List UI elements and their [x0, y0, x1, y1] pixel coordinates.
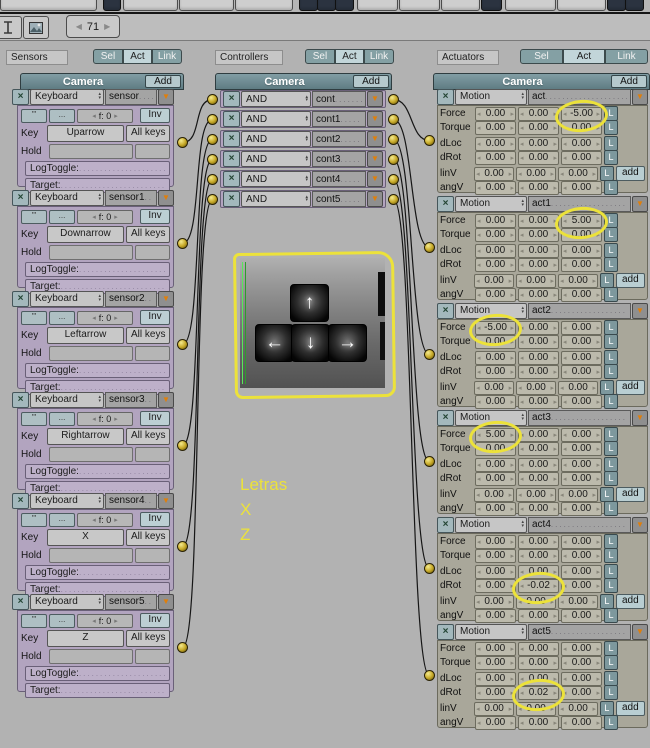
controller-output-socket[interactable]: [388, 94, 399, 105]
local-toggle-button[interactable]: L: [604, 394, 618, 409]
value-field[interactable]: 0.00: [475, 672, 516, 686]
value-field[interactable]: 0.00: [475, 686, 516, 700]
pulse-positive-icon-button[interactable]: ''': [21, 109, 47, 123]
value-field[interactable]: 0.00: [518, 244, 559, 258]
value-field[interactable]: 0.00: [558, 595, 598, 609]
add-toggle-button[interactable]: add: [616, 273, 645, 288]
value-field[interactable]: 0.00: [558, 702, 598, 716]
value-field[interactable]: 0.00: [518, 335, 559, 349]
sensor-type-dropdown[interactable]: Keyboard: [30, 89, 104, 105]
value-field[interactable]: 0.00: [475, 502, 516, 516]
value-field[interactable]: 0.00: [561, 686, 602, 700]
actuator-collapse-button[interactable]: [632, 517, 648, 533]
value-field[interactable]: 0.00: [518, 228, 559, 242]
actuator-input-socket[interactable]: [424, 456, 435, 467]
controller-type-dropdown[interactable]: AND: [241, 151, 311, 167]
hold-field[interactable]: [49, 346, 133, 361]
local-toggle-button[interactable]: L: [604, 715, 618, 730]
value-field[interactable]: 0.00: [518, 321, 559, 335]
sensors-act-button[interactable]: Act: [123, 49, 152, 64]
value-field[interactable]: 0.00: [561, 395, 602, 409]
controllers-sel-button[interactable]: Sel: [305, 49, 335, 64]
actuator-close-button[interactable]: [437, 624, 454, 640]
value-field[interactable]: 0.00: [561, 565, 602, 579]
sensor-close-button[interactable]: [12, 190, 29, 206]
toolbar-button[interactable]: [357, 0, 398, 11]
sensor-close-button[interactable]: [12, 493, 29, 509]
controller-collapse-button[interactable]: [367, 131, 383, 147]
local-toggle-button[interactable]: L: [600, 380, 614, 395]
frequency-field[interactable]: f: 0: [77, 412, 133, 426]
value-field[interactable]: 0.00: [518, 428, 559, 442]
value-field[interactable]: 0.00: [474, 595, 514, 609]
controllers-link-button[interactable]: Link: [364, 49, 394, 64]
local-toggle-button[interactable]: L: [604, 655, 618, 670]
controller-input-socket[interactable]: [207, 94, 218, 105]
sensor-name-field[interactable]: sensor: [105, 89, 157, 105]
actuator-input-socket[interactable]: [424, 242, 435, 253]
pulse-negative-icon-button[interactable]: ...: [49, 210, 75, 224]
sensor-output-socket[interactable]: [177, 339, 188, 350]
controller-collapse-button[interactable]: [367, 111, 383, 127]
image-icon-button[interactable]: [23, 16, 49, 39]
local-toggle-button[interactable]: L: [600, 273, 614, 288]
local-toggle-button[interactable]: L: [604, 243, 618, 258]
value-field[interactable]: 0.00: [475, 716, 516, 730]
frequency-field[interactable]: f: 0: [77, 210, 133, 224]
actuators-sel-button[interactable]: Sel: [520, 49, 563, 64]
value-field[interactable]: 0.00: [558, 274, 598, 288]
toolbar-button[interactable]: [0, 0, 97, 11]
actuator-close-button[interactable]: [437, 89, 454, 105]
local-toggle-button[interactable]: L: [604, 534, 618, 549]
controller-close-button[interactable]: [223, 111, 240, 127]
pulse-negative-icon-button[interactable]: ...: [49, 109, 75, 123]
value-field[interactable]: 0.00: [561, 288, 602, 302]
toolbar-button[interactable]: [557, 0, 606, 11]
value-field[interactable]: 0.00: [561, 244, 602, 258]
toolbar-button[interactable]: [299, 0, 318, 11]
value-field[interactable]: 0.00: [474, 381, 514, 395]
frame-number-field[interactable]: ◀ 71 ▶: [66, 15, 120, 38]
controller-output-socket[interactable]: [388, 174, 399, 185]
actuator-close-button[interactable]: [437, 410, 454, 426]
value-field[interactable]: 0.00: [561, 181, 602, 195]
sensor-name-field[interactable]: sensor3: [105, 392, 157, 408]
logtoggle-field[interactable]: LogToggle:: [25, 666, 170, 681]
local-toggle-button[interactable]: L: [604, 457, 618, 472]
sensor-type-dropdown[interactable]: Keyboard: [30, 190, 104, 206]
toolbar-button[interactable]: [235, 0, 293, 11]
controller-type-dropdown[interactable]: AND: [241, 91, 311, 107]
pulse-negative-icon-button[interactable]: ...: [49, 412, 75, 426]
value-field[interactable]: 0.00: [561, 335, 602, 349]
toolbar-button[interactable]: [103, 0, 121, 11]
value-field[interactable]: 0.00: [475, 535, 516, 549]
logtoggle-field[interactable]: LogToggle:: [25, 464, 170, 479]
value-field[interactable]: 0.00: [518, 214, 559, 228]
value-field[interactable]: 0.00: [475, 565, 516, 579]
sensor-output-socket[interactable]: [177, 541, 188, 552]
controller-close-button[interactable]: [223, 171, 240, 187]
controller-collapse-button[interactable]: [367, 171, 383, 187]
sensor-close-button[interactable]: [12, 291, 29, 307]
all-keys-button[interactable]: All keys: [126, 630, 170, 647]
value-field[interactable]: 0.00: [475, 335, 516, 349]
local-toggle-button[interactable]: L: [604, 578, 618, 593]
target-field[interactable]: Target:: [25, 683, 170, 698]
local-toggle-button[interactable]: L: [604, 180, 618, 195]
actuator-name-field[interactable]: act: [528, 89, 631, 105]
add-toggle-button[interactable]: add: [616, 166, 645, 181]
controller-name-field[interactable]: cont4: [312, 171, 366, 187]
controller-name-field[interactable]: cont2: [312, 131, 366, 147]
actuator-input-socket[interactable]: [424, 670, 435, 681]
sensor-collapse-button[interactable]: [158, 594, 174, 610]
controller-close-button[interactable]: [223, 191, 240, 207]
actuator-type-dropdown[interactable]: Motion: [455, 303, 527, 319]
text-cursor-icon-button[interactable]: [0, 16, 22, 39]
pulse-negative-icon-button[interactable]: ...: [49, 513, 75, 527]
toolbar-button[interactable]: [399, 0, 440, 11]
controller-input-socket[interactable]: [207, 134, 218, 145]
value-field[interactable]: 0.00: [561, 549, 602, 563]
hold-field[interactable]: [49, 144, 133, 159]
controller-type-dropdown[interactable]: AND: [241, 171, 311, 187]
pulse-positive-icon-button[interactable]: ''': [21, 412, 47, 426]
add-toggle-button[interactable]: add: [616, 487, 645, 502]
actuator-input-socket[interactable]: [424, 135, 435, 146]
local-toggle-button[interactable]: L: [604, 136, 618, 151]
sensors-link-button[interactable]: Link: [152, 49, 182, 64]
value-field[interactable]: 0.00: [475, 642, 516, 656]
value-field[interactable]: 0.00: [518, 656, 559, 670]
value-field[interactable]: 0.00: [516, 274, 556, 288]
local-toggle-button[interactable]: L: [600, 594, 614, 609]
value-field[interactable]: 0.00: [518, 502, 559, 516]
value-field[interactable]: 0.00: [475, 351, 516, 365]
sensor-type-dropdown[interactable]: Keyboard: [30, 594, 104, 610]
value-field[interactable]: 0.00: [518, 458, 559, 472]
sensor-type-dropdown[interactable]: Keyboard: [30, 291, 104, 307]
frequency-field[interactable]: f: 0: [77, 311, 133, 325]
value-field[interactable]: 0.00: [561, 258, 602, 272]
controller-name-field[interactable]: cont3: [312, 151, 366, 167]
controller-input-socket[interactable]: [207, 154, 218, 165]
controller-collapse-button[interactable]: [367, 191, 383, 207]
local-toggle-button[interactable]: L: [604, 350, 618, 365]
value-field[interactable]: 0.00: [561, 121, 602, 135]
invert-button[interactable]: Inv: [140, 209, 170, 224]
sensor-collapse-button[interactable]: [158, 291, 174, 307]
actuator-close-button[interactable]: [437, 196, 454, 212]
value-field[interactable]: 0.00: [558, 381, 598, 395]
value-field[interactable]: 0.00: [475, 137, 516, 151]
sensors-sel-button[interactable]: Sel: [93, 49, 123, 64]
value-field[interactable]: 0.00: [516, 488, 556, 502]
key-value-button[interactable]: Rightarrow: [47, 428, 125, 445]
toolbar-button[interactable]: [625, 0, 644, 11]
value-field[interactable]: 0.00: [474, 274, 514, 288]
value-field[interactable]: 0.00: [475, 458, 516, 472]
value-field[interactable]: 0.00: [518, 351, 559, 365]
controller-close-button[interactable]: [223, 91, 240, 107]
actuator-collapse-button[interactable]: [632, 303, 648, 319]
frequency-field[interactable]: f: 0: [77, 109, 133, 123]
controller-output-socket[interactable]: [388, 194, 399, 205]
logtoggle-field[interactable]: LogToggle:: [25, 161, 170, 176]
controller-name-field[interactable]: cont: [312, 91, 366, 107]
value-field[interactable]: 0.00: [561, 579, 602, 593]
actuator-name-field[interactable]: act3: [528, 410, 631, 426]
all-keys-button[interactable]: All keys: [126, 226, 170, 243]
value-field[interactable]: 0.00: [561, 472, 602, 486]
value-field[interactable]: 0.00: [475, 365, 516, 379]
sensor-output-socket[interactable]: [177, 642, 188, 653]
local-toggle-button[interactable]: L: [604, 334, 618, 349]
value-field[interactable]: 0.00: [475, 214, 516, 228]
toolbar-button[interactable]: [123, 0, 178, 11]
sensors-add-button[interactable]: Add: [145, 75, 181, 88]
controller-type-dropdown[interactable]: AND: [241, 131, 311, 147]
sensor-output-socket[interactable]: [177, 238, 188, 249]
sensor-name-field[interactable]: sensor5: [105, 594, 157, 610]
controller-close-button[interactable]: [223, 151, 240, 167]
value-field[interactable]: 0.00: [474, 702, 514, 716]
value-field[interactable]: -5.00: [475, 321, 516, 335]
value-field[interactable]: 0.00: [561, 365, 602, 379]
actuator-type-dropdown[interactable]: Motion: [455, 196, 527, 212]
toolbar-button[interactable]: [441, 0, 480, 11]
hold-field[interactable]: [135, 245, 170, 260]
hold-field[interactable]: [135, 548, 170, 563]
sensor-type-dropdown[interactable]: Keyboard: [30, 392, 104, 408]
sensor-collapse-button[interactable]: [158, 493, 174, 509]
toolbar-button[interactable]: [317, 0, 336, 11]
toolbar-button[interactable]: [335, 0, 354, 11]
add-toggle-button[interactable]: add: [616, 594, 645, 609]
pulse-positive-icon-button[interactable]: ''': [21, 513, 47, 527]
value-field[interactable]: 0.00: [518, 137, 559, 151]
key-value-button[interactable]: Leftarrow: [47, 327, 125, 344]
local-toggle-button[interactable]: L: [604, 120, 618, 135]
controller-output-socket[interactable]: [388, 154, 399, 165]
value-field[interactable]: 0.00: [518, 565, 559, 579]
controller-type-dropdown[interactable]: AND: [241, 111, 311, 127]
value-field[interactable]: 0.00: [518, 535, 559, 549]
value-field[interactable]: 0.00: [561, 351, 602, 365]
value-field[interactable]: 0.00: [474, 167, 514, 181]
value-field[interactable]: 0.02: [518, 686, 559, 700]
controller-output-socket[interactable]: [388, 114, 399, 125]
actuators-act-button[interactable]: Act: [563, 49, 605, 64]
add-toggle-button[interactable]: add: [616, 380, 645, 395]
actuator-type-dropdown[interactable]: Motion: [455, 517, 527, 533]
toolbar-button[interactable]: [179, 0, 234, 11]
actuator-name-field[interactable]: act4: [528, 517, 631, 533]
actuator-collapse-button[interactable]: [632, 410, 648, 426]
all-keys-button[interactable]: All keys: [126, 428, 170, 445]
local-toggle-button[interactable]: L: [604, 257, 618, 272]
value-field[interactable]: 0.00: [561, 151, 602, 165]
value-field[interactable]: 0.00: [561, 137, 602, 151]
controller-type-dropdown[interactable]: AND: [241, 191, 311, 207]
value-field[interactable]: 0.00: [518, 258, 559, 272]
local-toggle-button[interactable]: L: [604, 471, 618, 486]
sensor-close-button[interactable]: [12, 392, 29, 408]
sensor-collapse-button[interactable]: [158, 190, 174, 206]
frequency-field[interactable]: f: 0: [77, 513, 133, 527]
value-field[interactable]: 0.00: [518, 442, 559, 456]
actuator-name-field[interactable]: act5: [528, 624, 631, 640]
actuator-name-field[interactable]: act2: [528, 303, 631, 319]
value-field[interactable]: 0.00: [518, 716, 559, 730]
logtoggle-field[interactable]: LogToggle:: [25, 262, 170, 277]
local-toggle-button[interactable]: L: [604, 441, 618, 456]
value-field[interactable]: 0.00: [561, 672, 602, 686]
value-field[interactable]: 0.00: [518, 121, 559, 135]
local-toggle-button[interactable]: L: [604, 213, 618, 228]
value-field[interactable]: -0.02: [518, 579, 559, 593]
value-field[interactable]: 0.00: [561, 609, 602, 623]
toolbar-button[interactable]: [481, 0, 502, 11]
controller-input-socket[interactable]: [207, 114, 218, 125]
controllers-act-button[interactable]: Act: [335, 49, 364, 64]
value-field[interactable]: 0.00: [516, 702, 556, 716]
value-field[interactable]: 0.00: [475, 549, 516, 563]
value-field[interactable]: 0.00: [518, 181, 559, 195]
local-toggle-button[interactable]: L: [604, 427, 618, 442]
sensor-close-button[interactable]: [12, 594, 29, 610]
invert-button[interactable]: Inv: [140, 108, 170, 123]
invert-button[interactable]: Inv: [140, 310, 170, 325]
actuator-input-socket[interactable]: [424, 349, 435, 360]
local-toggle-button[interactable]: L: [604, 671, 618, 686]
add-toggle-button[interactable]: add: [616, 701, 645, 716]
local-toggle-button[interactable]: L: [600, 701, 614, 716]
pulse-positive-icon-button[interactable]: ''': [21, 311, 47, 325]
controller-close-button[interactable]: [223, 131, 240, 147]
value-field[interactable]: 0.00: [475, 258, 516, 272]
local-toggle-button[interactable]: L: [604, 150, 618, 165]
value-field[interactable]: 0.00: [475, 121, 516, 135]
value-field[interactable]: 0.00: [518, 549, 559, 563]
pulse-negative-icon-button[interactable]: ...: [49, 614, 75, 628]
frame-next-icon[interactable]: ▶: [99, 22, 115, 31]
controller-collapse-button[interactable]: [367, 151, 383, 167]
value-field[interactable]: 0.00: [474, 488, 514, 502]
value-field[interactable]: 0.00: [561, 321, 602, 335]
local-toggle-button[interactable]: L: [604, 641, 618, 656]
all-keys-button[interactable]: All keys: [126, 327, 170, 344]
local-toggle-button[interactable]: L: [604, 287, 618, 302]
invert-button[interactable]: Inv: [140, 411, 170, 426]
value-field[interactable]: 0.00: [518, 642, 559, 656]
toolbar-button[interactable]: [505, 0, 556, 11]
value-field[interactable]: 0.00: [475, 442, 516, 456]
actuator-collapse-button[interactable]: [632, 196, 648, 212]
value-field[interactable]: -5.00: [561, 107, 602, 121]
hold-field[interactable]: [135, 447, 170, 462]
value-field[interactable]: 0.00: [475, 181, 516, 195]
value-field[interactable]: 0.00: [475, 656, 516, 670]
sensor-close-button[interactable]: [12, 89, 29, 105]
hold-field[interactable]: [135, 144, 170, 159]
local-toggle-button[interactable]: L: [604, 364, 618, 379]
controllers-add-button[interactable]: Add: [353, 75, 389, 88]
value-field[interactable]: 0.00: [475, 472, 516, 486]
key-value-button[interactable]: X: [47, 529, 125, 546]
frame-prev-icon[interactable]: ◀: [71, 22, 87, 31]
local-toggle-button[interactable]: L: [600, 487, 614, 502]
value-field[interactable]: 0.00: [561, 716, 602, 730]
value-field[interactable]: 0.00: [561, 656, 602, 670]
local-toggle-button[interactable]: L: [604, 320, 618, 335]
actuator-name-field[interactable]: act1: [528, 196, 631, 212]
frequency-field[interactable]: f: 0: [77, 614, 133, 628]
controller-input-socket[interactable]: [207, 174, 218, 185]
value-field[interactable]: 0.00: [518, 365, 559, 379]
key-value-button[interactable]: Downarrow: [47, 226, 125, 243]
value-field[interactable]: 5.00: [561, 214, 602, 228]
invert-button[interactable]: Inv: [140, 512, 170, 527]
sensor-collapse-button[interactable]: [158, 89, 174, 105]
value-field[interactable]: 0.00: [516, 167, 556, 181]
value-field[interactable]: 0.00: [561, 502, 602, 516]
pulse-positive-icon-button[interactable]: ''': [21, 614, 47, 628]
controller-name-field[interactable]: cont5: [312, 191, 366, 207]
actuator-type-dropdown[interactable]: Motion: [455, 89, 527, 105]
hold-field[interactable]: [135, 346, 170, 361]
controller-input-socket[interactable]: [207, 194, 218, 205]
value-field[interactable]: 0.00: [475, 244, 516, 258]
value-field[interactable]: 0.00: [518, 107, 559, 121]
local-toggle-button[interactable]: L: [600, 166, 614, 181]
hold-field[interactable]: [49, 447, 133, 462]
hold-field[interactable]: [49, 649, 133, 664]
value-field[interactable]: 0.00: [518, 472, 559, 486]
value-field[interactable]: 0.00: [516, 595, 556, 609]
value-field[interactable]: 0.00: [516, 381, 556, 395]
sensor-name-field[interactable]: sensor2: [105, 291, 157, 307]
value-field[interactable]: 0.00: [561, 228, 602, 242]
local-toggle-button[interactable]: L: [604, 548, 618, 563]
controller-collapse-button[interactable]: [367, 91, 383, 107]
actuator-input-socket[interactable]: [424, 563, 435, 574]
value-field[interactable]: 0.00: [518, 395, 559, 409]
invert-button[interactable]: Inv: [140, 613, 170, 628]
actuator-type-dropdown[interactable]: Motion: [455, 410, 527, 426]
actuator-close-button[interactable]: [437, 303, 454, 319]
actuators-link-button[interactable]: Link: [605, 49, 648, 64]
value-field[interactable]: 5.00: [475, 428, 516, 442]
sensor-name-field[interactable]: sensor1: [105, 190, 157, 206]
value-field[interactable]: 0.00: [518, 151, 559, 165]
key-value-button[interactable]: Z: [47, 630, 125, 647]
controller-output-socket[interactable]: [388, 134, 399, 145]
all-keys-button[interactable]: All keys: [126, 529, 170, 546]
value-field[interactable]: 0.00: [561, 535, 602, 549]
sensor-output-socket[interactable]: [177, 137, 188, 148]
hold-field[interactable]: [49, 548, 133, 563]
logtoggle-field[interactable]: LogToggle:: [25, 363, 170, 378]
sensor-output-socket[interactable]: [177, 440, 188, 451]
logtoggle-field[interactable]: LogToggle:: [25, 565, 170, 580]
sensor-collapse-button[interactable]: [158, 392, 174, 408]
value-field[interactable]: 0.00: [561, 642, 602, 656]
hold-field[interactable]: [135, 649, 170, 664]
local-toggle-button[interactable]: L: [604, 564, 618, 579]
